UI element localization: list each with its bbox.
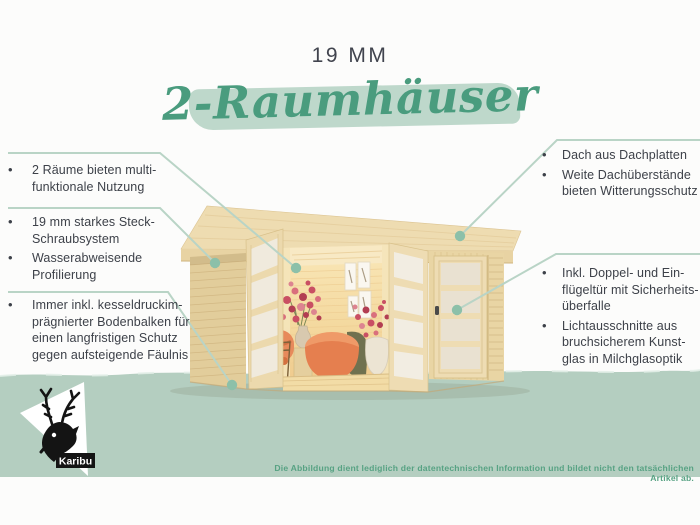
connector-dot <box>452 305 462 315</box>
karibu-logo: Karibu <box>20 382 95 476</box>
feature-text: Lichtausschnitte aus bruchsicherem Kunst… <box>562 318 686 368</box>
feature-text: Weite Dachüberstände bieten Witterungssc… <box>562 167 698 200</box>
footer-band <box>0 370 700 477</box>
infographic-page: Karibu 19 MM 2-Raumhäuser 2 Räume bieten… <box>0 0 700 525</box>
double-door-left-leaf <box>246 229 283 389</box>
feature-group-roof: Dach aus Dachplatten Weite Dachüberständ… <box>542 147 700 203</box>
karibu-wordmark: Karibu <box>59 456 92 468</box>
feature-text: Dach aus Dachplatten <box>562 147 687 164</box>
feature-text: 19 mm starkes Steck- Schraubsystem <box>32 214 155 247</box>
connector-dots <box>210 231 465 390</box>
wall-thickness-label: 19 MM <box>0 44 700 68</box>
page-title: 2-Raumhäuser <box>0 64 700 135</box>
feature-group-rooms: 2 Räume bieten multi- funktionale Nutzun… <box>8 162 194 198</box>
armchair-left <box>252 330 294 365</box>
bullet-marker <box>8 250 32 283</box>
feature-item: Immer inkl. kesseldruckim- prägnierter B… <box>8 297 194 363</box>
flat-roof <box>181 206 521 263</box>
feature-group-doors: Inkl. Doppel- und Ein- flügeltür mit Sic… <box>542 265 700 370</box>
right-front-wall <box>429 251 504 381</box>
image-disclaimer: Die Abbildung dient lediglich der datent… <box>254 463 694 483</box>
connector-dot <box>227 380 237 390</box>
right-door-jamb <box>382 245 389 391</box>
feature-text: Wasserabweisende Profilierung <box>32 250 142 283</box>
bullet-marker <box>542 167 562 200</box>
feature-item: 2 Räume bieten multi- funktionale Nutzun… <box>8 162 194 195</box>
bullet-marker <box>8 297 32 363</box>
feature-group-floor-beams: Immer inkl. kesseldruckim- prägnierter B… <box>8 297 194 366</box>
vase <box>295 326 310 348</box>
feature-text: 2 Räume bieten multi- funktionale Nutzun… <box>32 162 156 195</box>
ceiling <box>283 245 389 266</box>
flower-pot-right <box>353 300 390 376</box>
bullet-marker <box>542 265 562 315</box>
feature-item: Lichtausschnitte aus bruchsicherem Kunst… <box>542 318 700 368</box>
logo-triangle <box>20 382 88 476</box>
interior-room <box>252 245 390 391</box>
logo-wordmark-box <box>56 453 95 468</box>
side-table <box>257 342 290 388</box>
olive-throw <box>347 332 368 377</box>
bullet-marker <box>542 147 562 164</box>
feature-item: 19 mm starkes Steck- Schraubsystem <box>8 214 194 247</box>
wood-floor <box>283 374 389 391</box>
feature-group-wall-system: 19 mm starkes Steck- Schraubsystem Wasse… <box>8 214 194 286</box>
armchair-middle <box>305 332 368 390</box>
karibu-deer-icon <box>41 389 79 462</box>
connector-dot <box>455 231 465 241</box>
double-door-right-leaf <box>389 243 428 392</box>
bullet-marker <box>8 162 32 195</box>
left-side-wall <box>190 253 246 389</box>
door-handle <box>435 306 439 315</box>
ground-shadow <box>170 382 530 400</box>
wall-picture-frames <box>345 262 371 318</box>
connector-dot <box>291 263 301 273</box>
connector-dot <box>210 258 220 268</box>
feature-item: Dach aus Dachplatten <box>542 147 700 164</box>
house-base-line <box>190 381 504 392</box>
feature-text: Immer inkl. kesseldruckim- prägnierter B… <box>32 297 190 363</box>
feature-item: Wasserabweisende Profilierung <box>8 250 194 283</box>
single-door <box>434 256 487 378</box>
garden-house-illustration <box>170 206 530 400</box>
feature-text: Inkl. Doppel- und Ein- flügeltür mit Sic… <box>562 265 699 315</box>
feature-item: Inkl. Doppel- und Ein- flügeltür mit Sic… <box>542 265 700 315</box>
flower-arrangement <box>277 281 322 378</box>
bullet-marker <box>8 214 32 247</box>
left-door-jamb <box>283 248 290 391</box>
pedestal <box>294 348 312 377</box>
feature-item: Weite Dachüberstände bieten Witterungssc… <box>542 167 700 200</box>
bullet-marker <box>542 318 562 368</box>
